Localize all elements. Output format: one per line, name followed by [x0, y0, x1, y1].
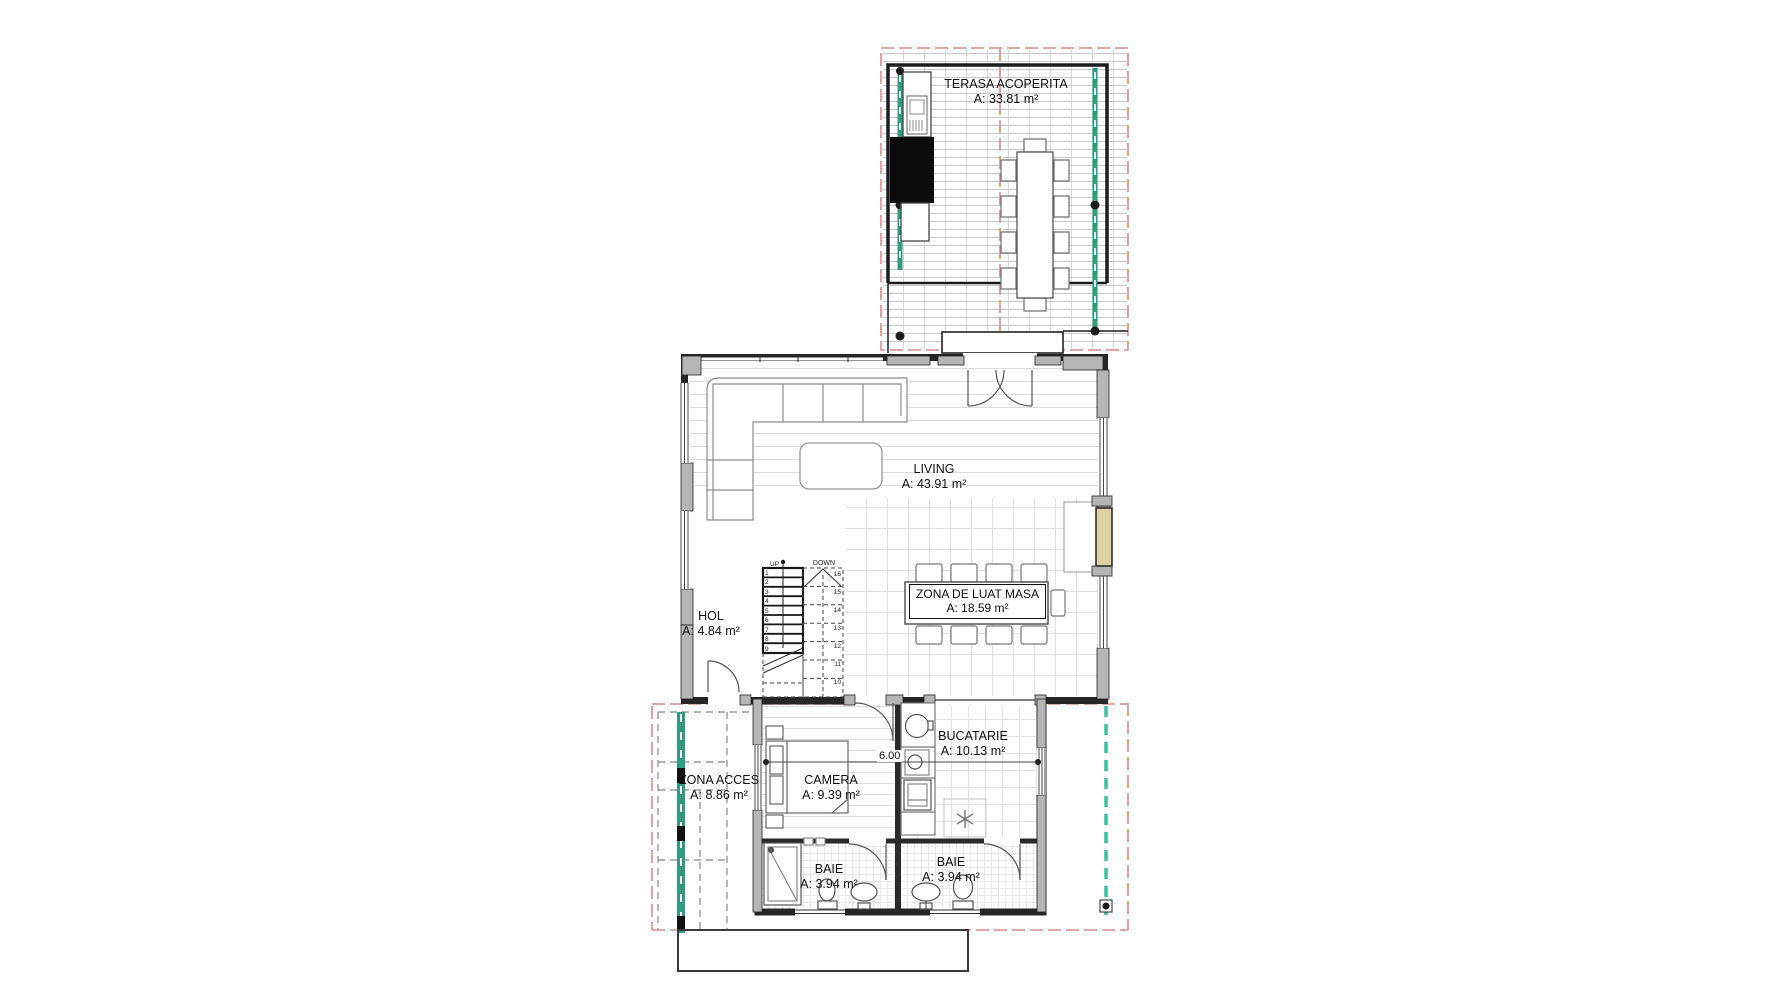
bath1-door-arc — [849, 844, 886, 880]
terrace-outdoor-kitchen — [890, 72, 934, 241]
toilet — [819, 879, 835, 901]
dining-set — [905, 564, 1065, 644]
bath2-fixtures — [912, 875, 973, 909]
access-zone-paving — [658, 712, 757, 930]
floorplan: TERASA ACOPERITA A: 33.81 m² LIVING A: 4… — [0, 0, 1788, 1006]
bed — [766, 726, 848, 828]
patio-outline — [678, 930, 968, 971]
kitchen-counter — [901, 703, 935, 835]
staircase — [763, 560, 843, 697]
fridge-symbol — [944, 799, 986, 837]
terrace-threshold — [942, 332, 1063, 353]
terrace-dining-table — [1001, 139, 1069, 311]
toilet — [954, 875, 973, 899]
entry-door-arc — [708, 661, 739, 692]
fireplace — [1064, 496, 1112, 576]
grill — [890, 137, 934, 203]
bath2-door-arc — [984, 844, 1020, 880]
bath1-fixtures — [764, 838, 877, 909]
sink — [912, 883, 940, 901]
plan-drawing — [0, 0, 1788, 1006]
sink — [851, 883, 877, 901]
kitchen-sink — [906, 715, 929, 738]
coffee-table — [800, 443, 882, 489]
bedroom-door-arc — [855, 703, 893, 741]
